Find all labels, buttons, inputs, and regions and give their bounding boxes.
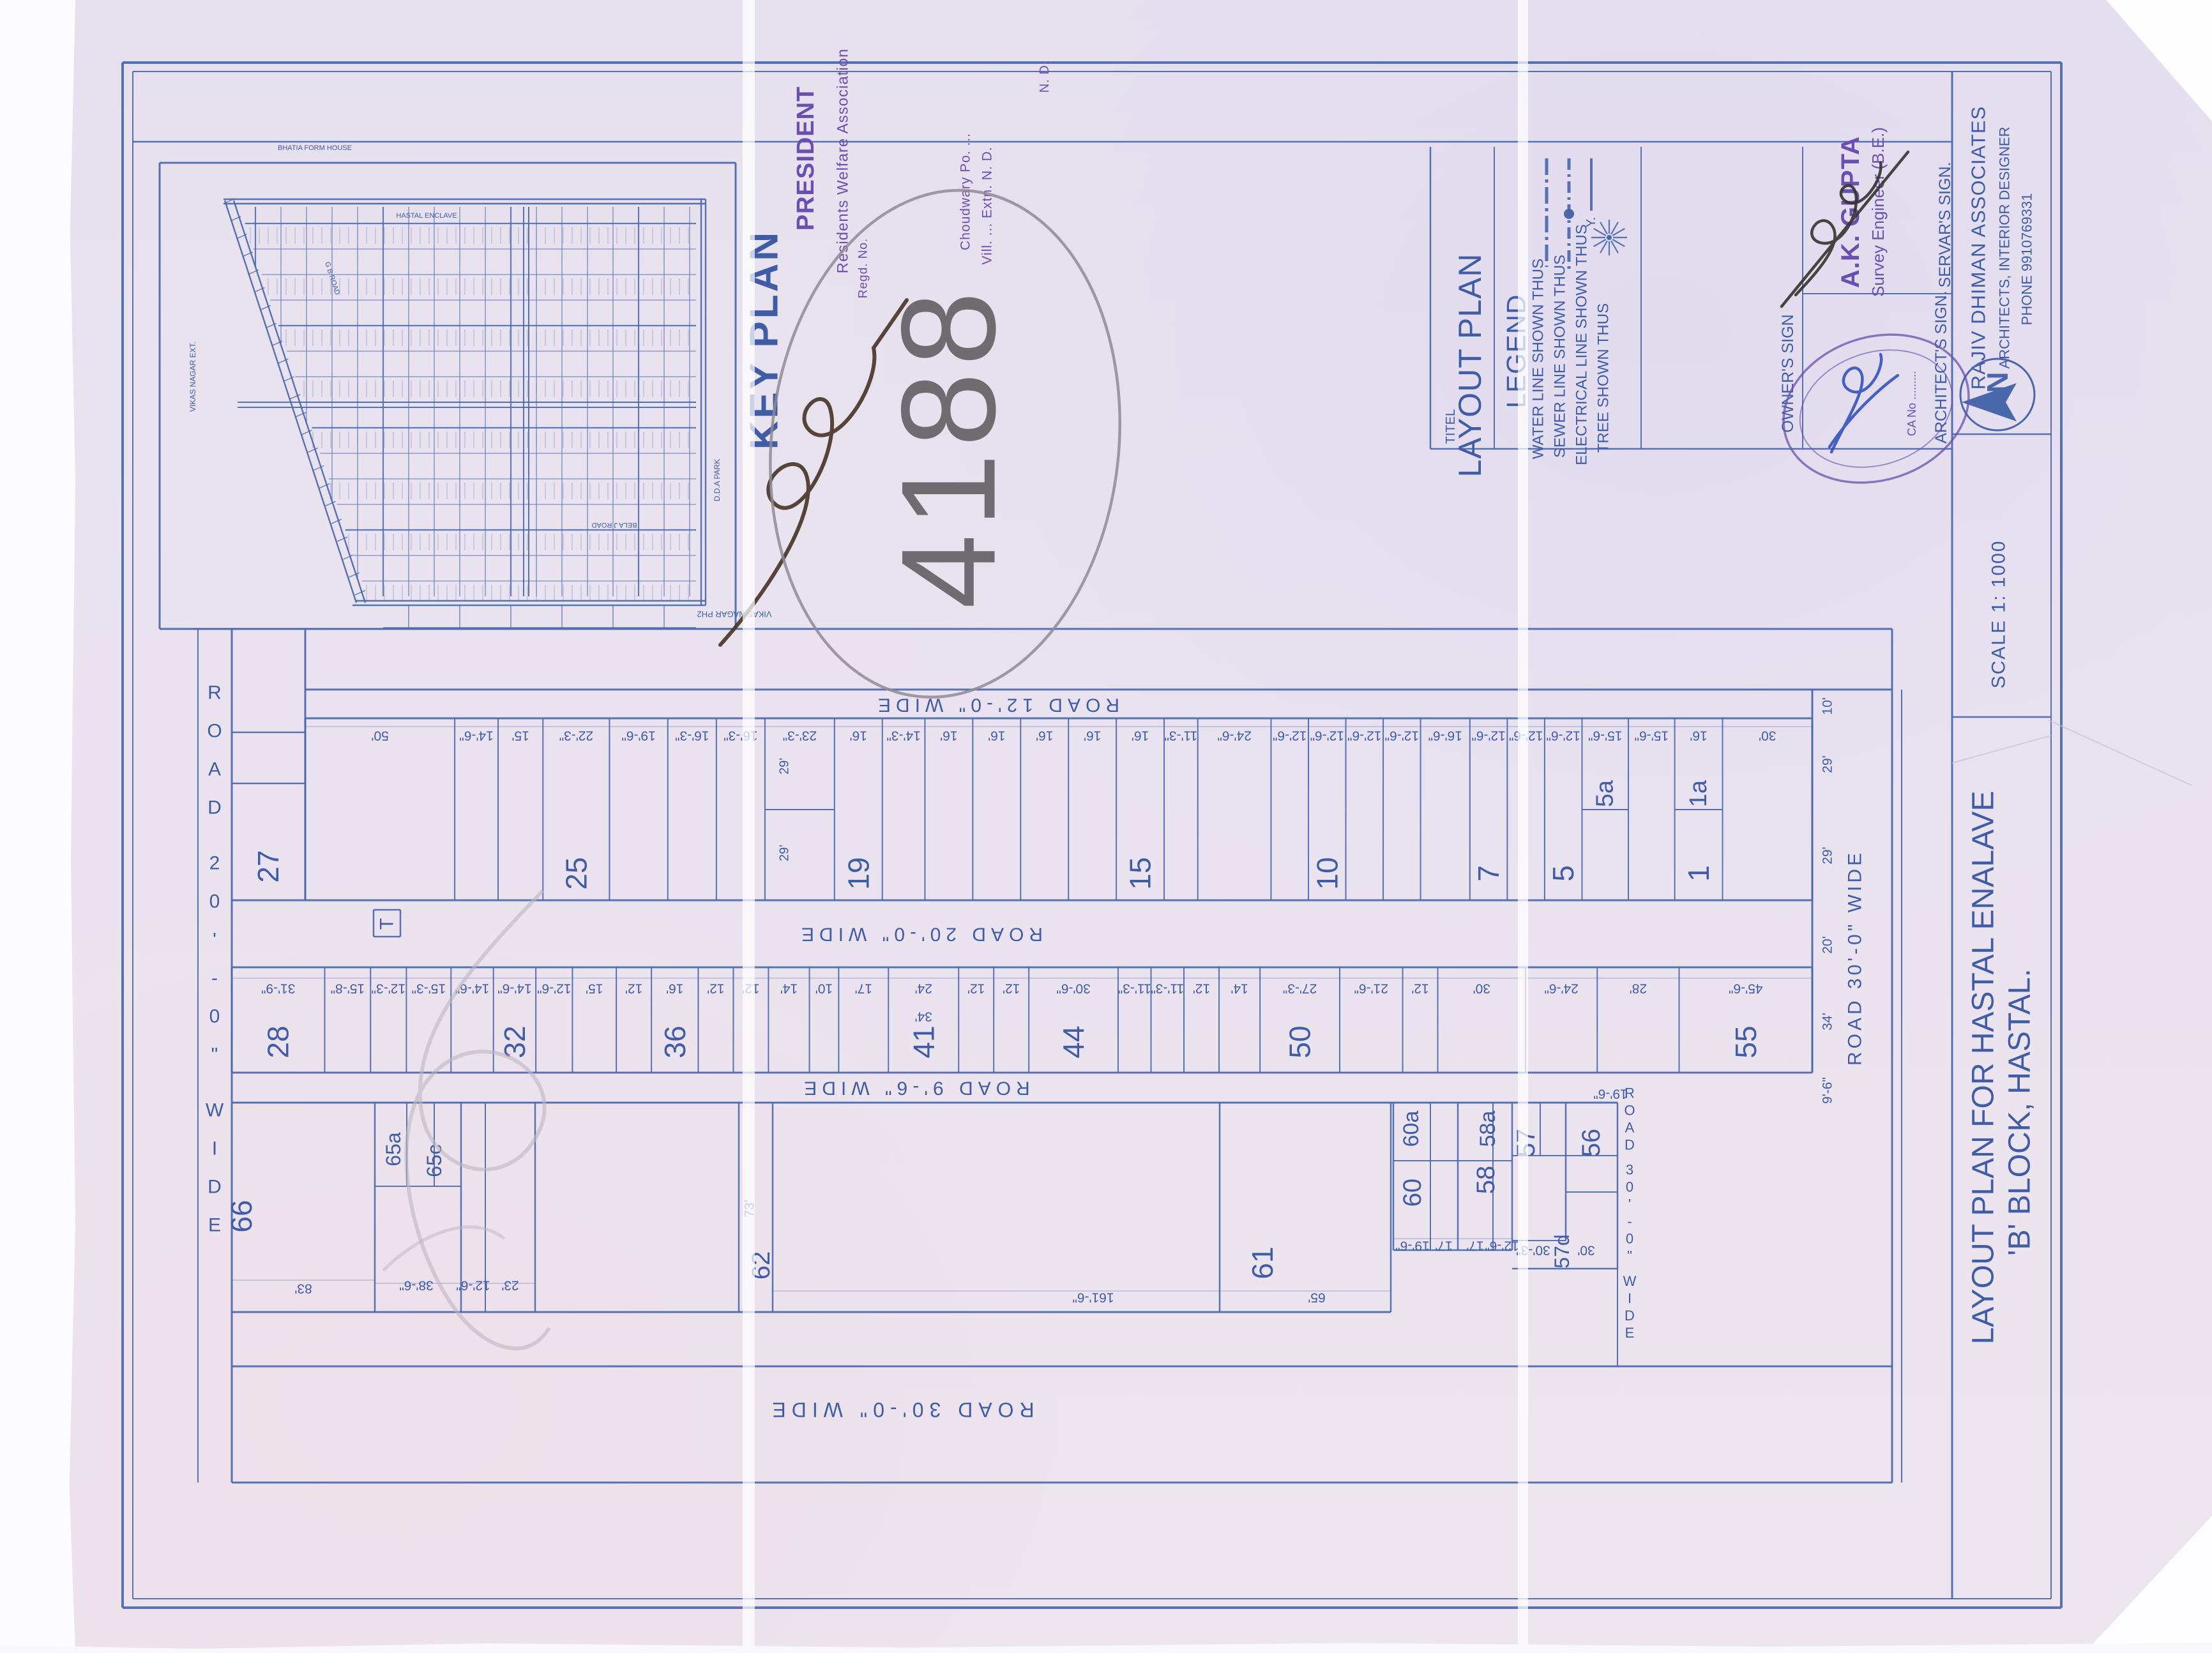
svg-text:2: 2 <box>209 853 220 874</box>
svg-text:Regd. No.: Regd. No. <box>857 238 870 299</box>
sheet-svg: BHATIA FORM HOUSEHASTAL ENCLAVED.D.A PAR… <box>0 0 2212 1653</box>
svg-text:ROAD 30'-0" WIDE: ROAD 30'-0" WIDE <box>766 1398 1034 1421</box>
svg-text:16': 16' <box>666 981 683 996</box>
svg-text:': ' <box>1628 1196 1631 1212</box>
svg-text:VIKAS NAGAR PH2: VIKAS NAGAR PH2 <box>697 610 771 619</box>
svg-text:12': 12' <box>967 981 985 996</box>
svg-text:A: A <box>208 759 221 780</box>
svg-text:61: 61 <box>1246 1246 1279 1279</box>
svg-text:': ' <box>213 930 216 951</box>
svg-text:17': 17' <box>1466 1239 1483 1253</box>
svg-text:57d: 57d <box>1550 1234 1573 1268</box>
svg-text:": " <box>1627 1248 1632 1264</box>
svg-text:LAYOUT PLAN FOR HASTAL ENALAVE: LAYOUT PLAN FOR HASTAL ENALAVE <box>1967 791 2001 1345</box>
svg-text:4188: 4188 <box>874 285 1024 608</box>
svg-text:22'-3": 22'-3" <box>559 728 594 743</box>
svg-text:30'-3": 30'-3" <box>1516 1243 1550 1258</box>
svg-text:12': 12' <box>625 981 642 996</box>
svg-text:14'-3": 14'-3" <box>886 728 921 743</box>
svg-text:12': 12' <box>707 981 724 996</box>
svg-text:30': 30' <box>1473 981 1490 996</box>
svg-text:0: 0 <box>209 1006 220 1027</box>
svg-text:58a: 58a <box>1476 1111 1500 1147</box>
svg-text:E: E <box>208 1215 221 1236</box>
key-plan-map: BHATIA FORM HOUSEHASTAL ENCLAVED.D.A PAR… <box>188 144 772 628</box>
svg-text:65a: 65a <box>382 1132 405 1166</box>
svg-text:SCALE 1: 1000: SCALE 1: 1000 <box>1989 540 2010 689</box>
svg-text:12': 12' <box>1193 981 1210 996</box>
svg-text:12'-6": 12'-6" <box>1310 728 1345 743</box>
svg-text:Vill. ... Extn. N. D.: Vill. ... Extn. N. D. <box>980 146 995 264</box>
svg-text:R: R <box>208 683 222 704</box>
svg-text:I: I <box>1628 1290 1632 1306</box>
svg-text:1: 1 <box>1682 865 1715 882</box>
svg-text:12'-6": 12'-6" <box>1509 728 1543 743</box>
svg-text:19: 19 <box>842 857 875 889</box>
svg-text:15'-3": 15'-3" <box>412 981 446 996</box>
svg-text:36: 36 <box>658 1025 692 1058</box>
svg-text:15': 15' <box>586 981 603 996</box>
svg-text:12'-6": 12'-6" <box>537 981 572 996</box>
svg-text:BELA J ROAD: BELA J ROAD <box>591 521 637 529</box>
svg-text:SERVAR'S SIGN.: SERVAR'S SIGN. <box>1936 162 1954 288</box>
legend-block: TITELLAYOUT PLANLEGENDWATER LINE SHOWN T… <box>1444 158 1627 477</box>
svg-text:73': 73' <box>743 1200 757 1217</box>
svg-text:0: 0 <box>209 891 220 912</box>
svg-text:66: 66 <box>225 1200 258 1232</box>
svg-text:SEWER LINE SHOWN THUS: SEWER LINE SHOWN THUS <box>1552 255 1569 458</box>
svg-text:83': 83' <box>294 1281 312 1296</box>
svg-text:16'-6": 16'-6" <box>1428 728 1462 743</box>
svg-text:-: - <box>211 968 218 989</box>
svg-text:27: 27 <box>252 850 285 882</box>
svg-text:14'-6": 14'-6" <box>459 728 494 743</box>
title-block: OWNER'S SIGNARCHITECT'S SIGN.SERVAR'S SI… <box>1779 106 2037 1345</box>
svg-text:65': 65' <box>1308 1290 1325 1305</box>
svg-text:E: E <box>1625 1325 1635 1341</box>
svg-text:12': 12' <box>742 981 759 996</box>
svg-text:11'-3": 11'-3" <box>1118 981 1151 996</box>
svg-text:ROAD 30'-0" WIDE: ROAD 30'-0" WIDE <box>1845 850 1866 1066</box>
svg-text:15': 15' <box>511 728 529 743</box>
svg-text:30': 30' <box>1759 728 1776 743</box>
svg-text:10: 10 <box>1310 857 1344 889</box>
svg-text:30': 30' <box>1577 1243 1595 1258</box>
scanned-blueprint-page: BHATIA FORM HOUSEHASTAL ENCLAVED.D.A PAR… <box>0 0 2212 1653</box>
svg-text:T: T <box>377 918 398 930</box>
svg-text:29': 29' <box>777 845 791 861</box>
svg-text:ROAD 12'-0" WIDE: ROAD 12'-0" WIDE <box>873 695 1119 716</box>
svg-text:HASTAL ENCLAVE: HASTAL ENCLAVE <box>396 212 457 220</box>
svg-text:62: 62 <box>747 1251 775 1280</box>
svg-text:19'-6": 19'-6" <box>1593 1087 1628 1101</box>
svg-text:30'-6": 30'-6" <box>1056 981 1091 996</box>
svg-text:RAJIV DHIMAN ASSOCIATES: RAJIV DHIMAN ASSOCIATES <box>1967 106 1990 389</box>
svg-text:50': 50' <box>371 728 388 743</box>
svg-text:CA No .........: CA No ......... <box>1905 371 1918 436</box>
svg-text:16': 16' <box>1132 728 1149 743</box>
svg-text:16': 16' <box>850 728 867 743</box>
svg-text:16': 16' <box>1036 728 1053 743</box>
svg-text:16'-3": 16'-3" <box>723 728 758 743</box>
svg-text:55: 55 <box>1729 1025 1762 1058</box>
plan-lines <box>123 63 2061 1608</box>
svg-text:O: O <box>207 721 222 742</box>
svg-text:BHATIA FORM HOUSE: BHATIA FORM HOUSE <box>278 144 352 152</box>
svg-text:15'-6": 15'-6" <box>1635 728 1669 743</box>
svg-text:ARCHITECTS, INTERIOR DESIGNER: ARCHITECTS, INTERIOR DESIGNER <box>1997 127 2013 369</box>
svg-text:PRESIDENT: PRESIDENT <box>792 86 819 230</box>
svg-text:12'-3": 12'-3" <box>372 981 406 996</box>
svg-text:11'-3": 11'-3" <box>1164 728 1197 743</box>
svg-text:ROAD 9'-6" WIDE: ROAD 9'-6" WIDE <box>799 1078 1029 1099</box>
svg-text:12'-6": 12'-6" <box>1485 1239 1519 1253</box>
svg-text:D: D <box>1625 1308 1635 1324</box>
svg-text:Residents Welfare Association: Residents Welfare Association <box>835 49 852 274</box>
svg-text:34': 34' <box>1821 1013 1835 1030</box>
svg-text:12'-6": 12'-6" <box>1347 728 1382 743</box>
svg-text:W: W <box>206 1100 224 1121</box>
svg-text:R: R <box>1625 1085 1635 1101</box>
svg-text:28: 28 <box>262 1025 295 1058</box>
svg-text:-: - <box>1627 1214 1632 1230</box>
svg-text:O: O <box>1624 1103 1635 1119</box>
svg-text:25: 25 <box>559 857 593 889</box>
svg-text:12'-6": 12'-6" <box>1471 728 1506 743</box>
svg-text:16': 16' <box>988 728 1005 743</box>
svg-text:16': 16' <box>1690 728 1707 743</box>
svg-text:10': 10' <box>1821 697 1835 714</box>
svg-text:KEY PLAN: KEY PLAN <box>743 230 787 449</box>
svg-text:Y.: Y. <box>1584 217 1598 227</box>
svg-text:41: 41 <box>907 1025 940 1058</box>
svg-text:60: 60 <box>1398 1179 1427 1207</box>
svg-text:WATER LINE SHOWN THUS: WATER LINE SHOWN THUS <box>1530 259 1547 459</box>
svg-text:24'-6": 24'-6" <box>1544 981 1579 996</box>
svg-text:56: 56 <box>1577 1129 1605 1158</box>
svg-text:34': 34' <box>915 1009 932 1024</box>
svg-text:0: 0 <box>1626 1179 1633 1195</box>
svg-text:ROAD 20'-0" WIDE: ROAD 20'-0" WIDE <box>796 924 1043 945</box>
stamps-and-handwriting: PRESIDENTResidents Welfare AssociationRe… <box>383 49 2192 1348</box>
svg-text:0: 0 <box>1626 1231 1633 1247</box>
svg-text:12'-6": 12'-6" <box>1385 728 1420 743</box>
svg-text:19'-6": 19'-6" <box>1395 1239 1430 1253</box>
svg-text:N: N <box>1981 372 2014 393</box>
svg-text:14': 14' <box>780 981 798 996</box>
svg-text:161'-6": 161'-6" <box>1072 1290 1114 1305</box>
svg-text:9'-6": 9'-6" <box>1821 1077 1835 1104</box>
svg-text:12'-6": 12'-6" <box>456 1278 490 1293</box>
svg-text:5a: 5a <box>1592 780 1619 807</box>
svg-text:23'-3": 23'-3" <box>783 728 817 743</box>
svg-text:60a: 60a <box>1399 1111 1423 1147</box>
svg-text:28': 28' <box>1630 981 1647 996</box>
svg-text:12'-6": 12'-6" <box>1273 728 1307 743</box>
svg-text:5: 5 <box>1547 865 1580 882</box>
svg-text:24'-6": 24'-6" <box>1217 728 1252 743</box>
svg-text:16': 16' <box>940 728 957 743</box>
svg-text:16'-3": 16'-3" <box>675 728 709 743</box>
svg-text:50: 50 <box>1284 1025 1317 1058</box>
svg-text:20': 20' <box>1821 936 1835 953</box>
svg-text:N. D.: N. D. <box>1038 61 1052 93</box>
svg-text:W: W <box>1623 1273 1637 1289</box>
svg-text:10': 10' <box>815 981 833 996</box>
svg-text:'B' BLOCK, HASTAL.: 'B' BLOCK, HASTAL. <box>2003 969 2037 1256</box>
svg-text:I: I <box>212 1138 217 1159</box>
svg-text:12': 12' <box>1003 981 1020 996</box>
svg-text:D: D <box>208 797 222 819</box>
svg-text:19'-6": 19'-6" <box>621 728 656 743</box>
svg-text:17': 17' <box>855 981 872 996</box>
paper-left-edge <box>0 0 75 1653</box>
svg-text:44: 44 <box>1057 1025 1090 1058</box>
svg-text:15'-6": 15'-6" <box>1588 728 1623 743</box>
svg-text:VIKAS NAGAR EXT.: VIKAS NAGAR EXT. <box>188 342 197 412</box>
svg-text:58: 58 <box>1472 1166 1500 1195</box>
svg-text:TREE SHOWN THUS: TREE SHOWN THUS <box>1595 303 1612 453</box>
svg-text:29': 29' <box>777 758 791 774</box>
svg-text:65c: 65c <box>423 1144 446 1177</box>
svg-text:12'-6": 12'-6" <box>1546 728 1580 743</box>
svg-text:16': 16' <box>1084 728 1101 743</box>
svg-text:3: 3 <box>1626 1162 1633 1178</box>
svg-text:38'-6": 38'-6" <box>399 1278 434 1293</box>
svg-text:11'-3": 11'-3" <box>1151 981 1184 996</box>
svg-text:ARCHITECT'S SIGN.: ARCHITECT'S SIGN. <box>1932 291 1950 444</box>
svg-text:LEGEND: LEGEND <box>1501 294 1531 409</box>
svg-text:G B ROAD: G B ROAD <box>323 261 341 296</box>
svg-text:17': 17' <box>1435 1239 1452 1253</box>
svg-text:14'-6": 14'-6" <box>497 981 532 996</box>
svg-text:A: A <box>1625 1120 1635 1136</box>
svg-text:OWNER'S SIGN: OWNER'S SIGN <box>1779 314 1797 432</box>
svg-text:29': 29' <box>1821 847 1835 864</box>
svg-text:12': 12' <box>1411 981 1428 996</box>
svg-text:PHONE 9910769331: PHONE 9910769331 <box>2019 193 2035 326</box>
svg-text:57: 57 <box>1512 1129 1540 1158</box>
svg-text:D: D <box>1625 1137 1635 1153</box>
svg-text:31'-9": 31'-9" <box>261 981 296 996</box>
svg-text:D: D <box>208 1177 222 1198</box>
svg-text:D.D.A PARK: D.D.A PARK <box>713 459 722 501</box>
svg-text:15'-8": 15'-8" <box>331 981 365 996</box>
svg-text:ELECTRICAL LINE SHOWN THUS: ELECTRICAL LINE SHOWN THUS <box>1573 224 1591 465</box>
svg-text:7: 7 <box>1472 865 1505 882</box>
svg-text:": " <box>211 1045 218 1066</box>
svg-text:1a: 1a <box>1685 780 1712 807</box>
svg-text:24': 24' <box>915 981 932 996</box>
svg-text:Survey Engineer (B.E.): Survey Engineer (B.E.) <box>1868 127 1888 297</box>
svg-text:21'-6": 21'-6" <box>1354 981 1389 996</box>
plot-rows: 50'14'-6"15'22'-3"19'-6"16'-3"16'-3"23'-… <box>225 697 1835 1304</box>
svg-text:23': 23' <box>501 1278 519 1293</box>
svg-text:15: 15 <box>1124 857 1157 889</box>
svg-text:45'-6": 45'-6" <box>1729 981 1763 996</box>
svg-text:27'-3": 27'-3" <box>1283 981 1317 996</box>
svg-text:29': 29' <box>1821 755 1835 773</box>
svg-text:LAYOUT PLAN: LAYOUT PLAN <box>1452 253 1488 478</box>
svg-text:14': 14' <box>1231 981 1248 996</box>
